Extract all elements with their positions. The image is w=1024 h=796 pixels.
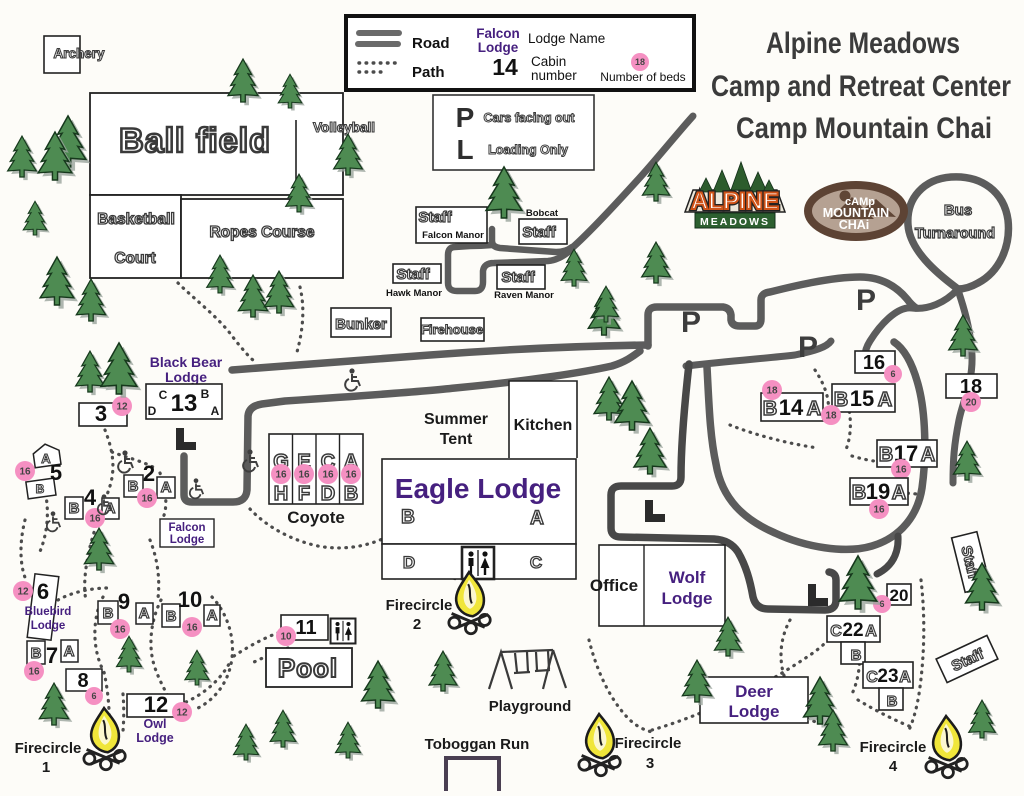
svg-text:8: 8	[77, 670, 88, 692]
svg-text:Bobcat: Bobcat	[526, 208, 559, 219]
svg-text:Falcon: Falcon	[168, 522, 205, 534]
svg-text:Lodge: Lodge	[31, 620, 66, 632]
svg-text:A: A	[64, 643, 75, 660]
svg-text:16: 16	[345, 470, 357, 481]
svg-text:Staff: Staff	[501, 269, 535, 286]
svg-text:16: 16	[141, 494, 153, 505]
svg-text:20: 20	[965, 398, 977, 409]
svg-text:Ball field: Ball field	[119, 122, 271, 160]
svg-text:A: A	[865, 623, 877, 640]
svg-text:Falcon: Falcon	[476, 26, 520, 41]
svg-text:B: B	[69, 500, 80, 517]
svg-text:22: 22	[842, 620, 863, 641]
svg-text:Playground: Playground	[489, 698, 572, 715]
svg-text:Cabin: Cabin	[531, 54, 566, 69]
svg-text:C: C	[866, 669, 878, 686]
svg-text:14: 14	[779, 395, 804, 420]
svg-text:P: P	[856, 284, 876, 317]
svg-text:number: number	[531, 68, 577, 83]
svg-text:B: B	[103, 605, 114, 622]
svg-text:11: 11	[295, 617, 316, 639]
svg-text:Lodge: Lodge	[662, 589, 713, 608]
svg-text:A: A	[530, 508, 544, 529]
svg-text:3: 3	[646, 755, 654, 772]
svg-text:4: 4	[889, 758, 898, 775]
svg-text:A: A	[139, 605, 150, 622]
svg-text:B: B	[763, 398, 777, 420]
svg-text:Falcon Manor: Falcon Manor	[422, 230, 484, 241]
svg-text:Raven Manor: Raven Manor	[494, 290, 554, 301]
svg-text:6: 6	[890, 369, 895, 379]
svg-text:4: 4	[84, 485, 97, 510]
svg-text:12: 12	[144, 692, 168, 717]
svg-text:A: A	[878, 389, 892, 411]
svg-text:D: D	[403, 553, 415, 572]
svg-text:Turnaround: Turnaround	[915, 226, 995, 242]
svg-text:12: 12	[17, 587, 29, 598]
svg-text:16: 16	[895, 465, 907, 476]
svg-text:Firecircle: Firecircle	[860, 739, 927, 756]
svg-text:3: 3	[95, 401, 107, 426]
svg-text:Archery: Archery	[53, 46, 105, 61]
svg-text:16: 16	[322, 470, 334, 481]
svg-text:Pool: Pool	[278, 653, 338, 683]
svg-text:C: C	[159, 388, 168, 402]
svg-text:Lodge: Lodge	[165, 369, 207, 385]
svg-text:Lodge: Lodge	[170, 534, 205, 546]
svg-text:15: 15	[850, 386, 874, 411]
svg-text:P: P	[798, 331, 818, 364]
svg-text:Kitchen: Kitchen	[514, 417, 573, 434]
svg-text:Alpine Meadows: Alpine Meadows	[766, 27, 960, 60]
svg-text:16: 16	[863, 352, 885, 374]
svg-text:Road: Road	[412, 35, 450, 52]
svg-text:B: B	[887, 693, 898, 710]
svg-text:16: 16	[114, 625, 126, 636]
svg-text:Firehouse: Firehouse	[421, 322, 483, 337]
svg-text:20: 20	[890, 586, 909, 605]
svg-text:Hawk Manor: Hawk Manor	[386, 288, 442, 299]
svg-text:Camp Mountain Chai: Camp Mountain Chai	[736, 112, 992, 145]
svg-text:Coyote: Coyote	[287, 508, 345, 527]
svg-text:Deer: Deer	[735, 682, 773, 701]
svg-text:C: C	[530, 553, 542, 572]
svg-text:B: B	[344, 483, 358, 505]
svg-text:16: 16	[89, 514, 101, 525]
svg-text:A: A	[899, 669, 911, 686]
svg-text:A: A	[921, 444, 935, 466]
svg-text:H: H	[274, 483, 288, 505]
svg-text:F: F	[298, 483, 310, 505]
svg-text:Camp and Retreat Center: Camp and Retreat Center	[711, 70, 1011, 103]
svg-text:A: A	[892, 482, 906, 504]
svg-text:Ropes Course: Ropes Course	[209, 224, 314, 241]
svg-text:16: 16	[298, 470, 310, 481]
svg-text:Staff: Staff	[418, 209, 452, 226]
svg-text:B: B	[879, 444, 893, 466]
svg-text:23: 23	[877, 666, 898, 687]
svg-text:P: P	[456, 102, 475, 133]
svg-text:Firecircle: Firecircle	[15, 740, 82, 757]
svg-text:2: 2	[413, 616, 421, 633]
svg-text:C: C	[830, 623, 842, 640]
svg-text:Bus: Bus	[944, 202, 972, 219]
svg-text:B: B	[36, 482, 45, 496]
svg-text:B: B	[31, 645, 42, 662]
svg-text:Cars facing out: Cars facing out	[484, 111, 576, 125]
svg-text:Bluebird: Bluebird	[25, 606, 72, 618]
svg-text:Loading Only: Loading Only	[488, 143, 568, 157]
svg-text:Lodge: Lodge	[729, 702, 780, 721]
svg-text:16: 16	[275, 470, 287, 481]
svg-text:B: B	[201, 387, 210, 401]
svg-text:16: 16	[28, 667, 40, 678]
svg-text:18: 18	[635, 57, 645, 67]
svg-text:Summer: Summer	[424, 411, 488, 428]
svg-text:B: B	[852, 482, 866, 504]
svg-text:Path: Path	[412, 64, 445, 81]
svg-text:A: A	[211, 404, 220, 418]
svg-text:D: D	[148, 404, 157, 418]
svg-text:Bunker: Bunker	[335, 316, 387, 333]
svg-text:Lodge Name: Lodge Name	[528, 31, 605, 46]
svg-text:12: 12	[176, 708, 188, 719]
svg-text:Firecircle: Firecircle	[386, 597, 453, 614]
svg-text:7: 7	[46, 643, 58, 668]
svg-text:1: 1	[42, 759, 50, 776]
svg-text:18: 18	[825, 411, 837, 422]
svg-text:Court: Court	[114, 250, 155, 267]
svg-text:Staff: Staff	[522, 224, 556, 241]
svg-text:9: 9	[118, 589, 130, 614]
svg-text:Black Bear: Black Bear	[150, 354, 223, 370]
svg-text:12: 12	[116, 402, 128, 413]
svg-text:Office: Office	[590, 576, 638, 595]
svg-text:MEADOWS: MEADOWS	[700, 216, 770, 228]
svg-text:Lodge: Lodge	[136, 731, 174, 745]
svg-text:Number of beds: Number of beds	[600, 70, 685, 84]
svg-text:6: 6	[91, 691, 96, 701]
svg-text:Lodge: Lodge	[478, 40, 519, 55]
svg-text:10: 10	[178, 587, 202, 612]
svg-text:Eagle Lodge: Eagle Lodge	[395, 473, 561, 504]
svg-text:A: A	[161, 479, 172, 496]
svg-text:18: 18	[766, 386, 778, 397]
svg-text:10: 10	[280, 632, 292, 643]
svg-text:13: 13	[171, 390, 198, 417]
svg-text:ALPINE: ALPINE	[691, 188, 779, 215]
svg-text:B: B	[166, 608, 177, 625]
svg-text:P: P	[681, 306, 701, 339]
svg-text:Owl: Owl	[144, 717, 167, 731]
svg-text:B: B	[851, 647, 862, 664]
svg-text:L: L	[456, 134, 473, 165]
svg-text:16: 16	[19, 467, 31, 478]
svg-text:B: B	[401, 507, 415, 528]
svg-text:Tent: Tent	[440, 431, 473, 448]
svg-text:Firecircle: Firecircle	[615, 735, 682, 752]
svg-text:Volleyball: Volleyball	[313, 120, 375, 135]
svg-text:B: B	[128, 478, 139, 495]
svg-text:2: 2	[143, 461, 155, 486]
svg-text:6: 6	[37, 579, 49, 604]
svg-text:Basketball: Basketball	[97, 211, 175, 228]
svg-text:16: 16	[873, 505, 885, 516]
svg-text:A: A	[807, 398, 821, 420]
svg-text:Wolf: Wolf	[669, 568, 706, 587]
svg-text:Toboggan Run: Toboggan Run	[425, 736, 530, 753]
svg-text:D: D	[321, 483, 335, 505]
svg-text:Staff: Staff	[396, 266, 430, 283]
svg-text:16: 16	[186, 623, 198, 634]
svg-text:CHAi: CHAi	[839, 218, 870, 232]
svg-text:A: A	[207, 607, 218, 624]
svg-text:5: 5	[50, 460, 62, 485]
svg-text:14: 14	[492, 54, 518, 80]
